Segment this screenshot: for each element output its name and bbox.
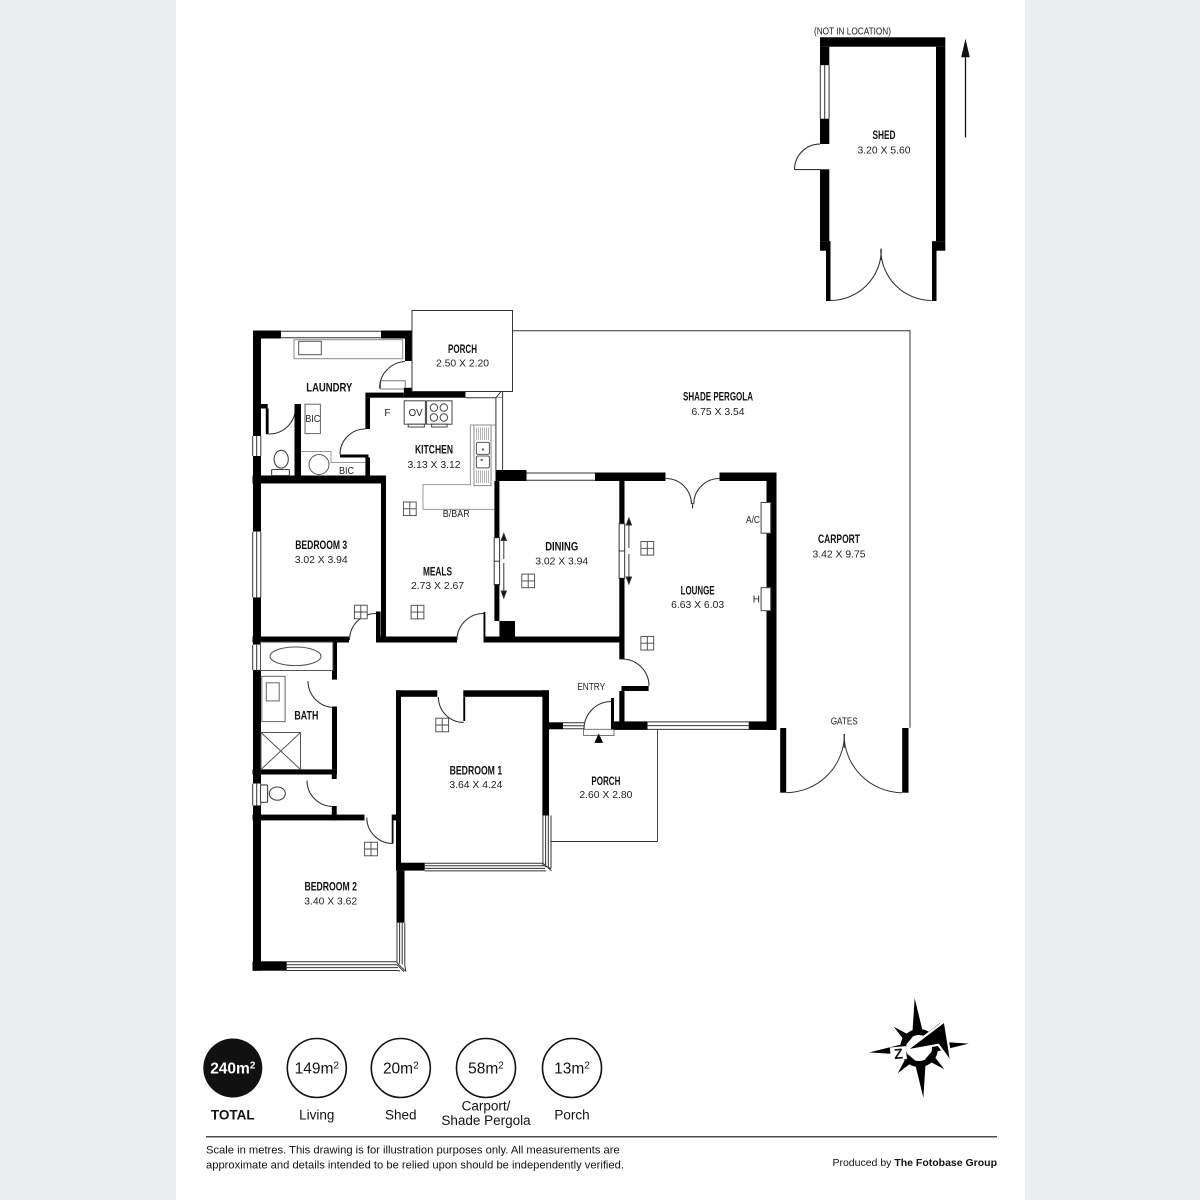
svg-text:240m2: 240m2: [210, 1061, 256, 1078]
svg-text:MEALS: MEALS: [423, 564, 452, 578]
svg-text:KITCHEN: KITCHEN: [415, 442, 453, 456]
svg-text:Shade Pergola: Shade Pergola: [441, 1113, 531, 1128]
svg-text:approximate and details intend: approximate and details intended to be r…: [206, 1160, 624, 1172]
svg-text:TOTAL: TOTAL: [211, 1108, 255, 1123]
svg-text:PORCH: PORCH: [448, 342, 477, 356]
svg-text:(NOT IN LOCATION): (NOT IN LOCATION): [814, 27, 891, 38]
svg-text:BIC: BIC: [305, 414, 320, 425]
svg-text:Living: Living: [299, 1108, 334, 1123]
svg-text:BEDROOM 1: BEDROOM 1: [450, 764, 503, 778]
svg-text:3.20 X 5.60: 3.20 X 5.60: [858, 145, 911, 156]
svg-text:Shed: Shed: [385, 1108, 417, 1123]
svg-text:BEDROOM 3: BEDROOM 3: [295, 538, 347, 552]
svg-text:Carport/: Carport/: [462, 1099, 511, 1114]
svg-text:Z: Z: [893, 1046, 903, 1063]
svg-text:BEDROOM 2: BEDROOM 2: [304, 879, 357, 893]
svg-text:F: F: [384, 408, 390, 419]
svg-text:6.75 X 3.54: 6.75 X 3.54: [692, 407, 745, 418]
svg-text:A/C: A/C: [746, 515, 760, 526]
svg-text:PORCH: PORCH: [591, 774, 620, 788]
svg-text:6.63 X 6.03: 6.63 X 6.03: [671, 600, 724, 611]
svg-text:149m2: 149m2: [295, 1061, 340, 1078]
svg-text:B/BAR: B/BAR: [443, 509, 470, 520]
svg-text:BIC: BIC: [339, 466, 354, 477]
svg-text:2.60 X 2.80: 2.60 X 2.80: [579, 790, 632, 801]
svg-text:3.64 X 4.24: 3.64 X 4.24: [449, 780, 502, 791]
svg-text:Scale in metres. This drawing: Scale in metres. This drawing is for ill…: [206, 1145, 620, 1157]
svg-text:LAUNDRY: LAUNDRY: [306, 380, 352, 394]
svg-text:3.40 X 3.62: 3.40 X 3.62: [304, 896, 357, 907]
svg-text:ENTRY: ENTRY: [577, 682, 605, 693]
svg-text:SHED: SHED: [873, 128, 896, 142]
svg-text:Produced by The Fotobase Group: Produced by The Fotobase Group: [832, 1157, 997, 1169]
svg-text:2.73 X 2.67: 2.73 X 2.67: [411, 581, 464, 592]
svg-text:LOUNGE: LOUNGE: [681, 584, 715, 598]
svg-text:2.50 X 2.20: 2.50 X 2.20: [436, 359, 489, 370]
svg-text:DINING: DINING: [545, 540, 578, 554]
svg-text:BATH: BATH: [294, 709, 318, 723]
svg-text:H: H: [753, 595, 760, 606]
svg-text:OV: OV: [409, 408, 423, 419]
svg-text:SHADE PERGOLA: SHADE PERGOLA: [683, 389, 753, 403]
svg-text:3.02 X 3.94: 3.02 X 3.94: [535, 557, 588, 568]
svg-text:GATES: GATES: [831, 717, 858, 728]
svg-text:3.02 X 3.94: 3.02 X 3.94: [295, 555, 348, 566]
svg-text:Porch: Porch: [554, 1108, 589, 1123]
svg-text:CARPORT: CARPORT: [818, 532, 860, 546]
svg-text:3.42 X 9.75: 3.42 X 9.75: [813, 550, 866, 561]
svg-text:3.13 X 3.12: 3.13 X 3.12: [408, 460, 461, 471]
